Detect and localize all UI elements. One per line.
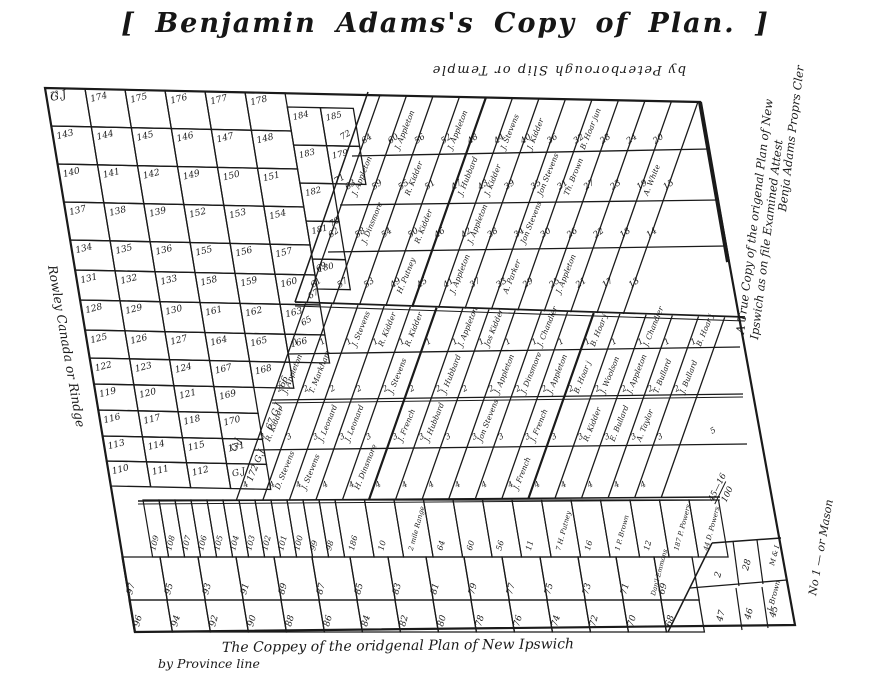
lot-number: 113 xyxy=(107,438,126,452)
lot-number: 2 xyxy=(713,570,724,579)
tier-mark: 4 xyxy=(585,479,595,490)
extra-label: 5 xyxy=(709,425,718,435)
proprietor-name: J. Appleton xyxy=(445,109,470,153)
lot-number: 91 xyxy=(239,582,252,596)
proprietor-name: J. Hubbard xyxy=(438,353,463,396)
proprietor-name: B. Hoar j xyxy=(694,312,716,349)
lot-number: 17 xyxy=(600,276,615,291)
slip-number: 16 xyxy=(583,539,594,551)
slip-number: 104 xyxy=(228,534,241,551)
tier-line xyxy=(328,246,726,252)
lot-number: 169 xyxy=(218,389,237,403)
section-line xyxy=(733,541,739,586)
lot-number: 168 xyxy=(254,363,273,377)
tier-mark: 1 xyxy=(503,336,512,346)
slip-number: 99 xyxy=(308,539,319,551)
slip-number: 105 xyxy=(212,534,225,551)
lot-number: 39 xyxy=(502,178,517,193)
lot-number: 36 xyxy=(545,132,560,147)
proprietor-name: J. Dinsmore xyxy=(359,200,385,246)
slip-number: 44 D. Powers xyxy=(702,505,722,552)
lot-number: 95 xyxy=(163,582,176,596)
lot-number: 30 xyxy=(539,226,554,241)
lot-number: 164 xyxy=(209,335,228,349)
lot-number: 129 xyxy=(124,303,143,317)
lot-number: 26 xyxy=(564,226,580,241)
lot-number: 165 xyxy=(249,335,268,349)
slip-number: 56 xyxy=(495,539,506,551)
lot-number: 178 xyxy=(249,94,268,108)
lot-number: 37 xyxy=(468,276,483,291)
proprietor-name: R. Kidder xyxy=(376,311,398,349)
plan-map: by Peterborough Slip or Temple Rowley Ca… xyxy=(0,0,891,698)
thick-boundary-line xyxy=(700,102,728,262)
slip-number: 10 xyxy=(377,539,388,551)
proprietor-name: A. Taylor xyxy=(634,408,656,444)
slip-number: 60 xyxy=(465,539,476,551)
slip-number: 109 xyxy=(148,534,161,551)
annotation-corner-mason: No 1 — or Mason xyxy=(806,498,836,597)
lot-number: 151 xyxy=(262,170,281,184)
lot-number: 137 xyxy=(68,204,87,218)
lot-number: 124 xyxy=(174,362,193,376)
lot-number: 94 xyxy=(170,614,183,628)
tier-mark: 4 xyxy=(558,479,568,490)
lot-number: 167 xyxy=(214,363,233,377)
tier-mark: 3 xyxy=(364,431,373,441)
proprietor-name: J. Woolson xyxy=(597,355,621,397)
lot-number: 148 xyxy=(256,132,275,146)
lot-number: 141 xyxy=(102,167,121,181)
lot-number: 153 xyxy=(228,207,247,221)
lot-number: 92 xyxy=(208,614,221,628)
lot-number: 51 xyxy=(423,178,438,192)
plan-lots-layer: G.J1741751761771781841851431441451461471… xyxy=(45,87,795,632)
lot-number: 135 xyxy=(115,243,134,257)
lot-number: 54 xyxy=(380,226,395,240)
proprietor-name: J. Appleton xyxy=(455,306,480,350)
lot-number: 147 xyxy=(216,131,235,145)
lot-number: 119 xyxy=(98,386,117,400)
lot-number: 184 xyxy=(292,109,310,123)
lot-number: 21 xyxy=(573,276,588,291)
lot-number: 120 xyxy=(138,387,157,401)
lot-number: 84 xyxy=(360,614,373,628)
tier-mark: 1 xyxy=(662,336,671,346)
lot-number: 116 xyxy=(103,412,122,426)
lot-number: 53 xyxy=(362,276,377,290)
lot-number: 46 xyxy=(743,607,756,622)
lot-number: 146 xyxy=(176,131,195,145)
lot-number: 23 xyxy=(608,178,623,193)
tier-mark: 3 xyxy=(444,431,453,441)
tier-mark: 4 xyxy=(479,479,489,490)
slip-number: 64 xyxy=(436,539,447,551)
lot-number: 83 xyxy=(391,582,404,596)
slip-number: 186 xyxy=(347,534,360,551)
slip-number: 108 xyxy=(164,534,177,551)
lot-number: 140 xyxy=(62,166,81,180)
lot-number: 14 xyxy=(645,226,660,240)
lot-number: 20 xyxy=(650,132,666,147)
lot-number: 121 xyxy=(178,388,197,402)
lot-number: 159 xyxy=(240,275,259,289)
proprietor-name: Jos Kidder xyxy=(481,307,505,349)
lot-number: 185 xyxy=(325,110,343,124)
lot-number: 142 xyxy=(142,168,161,182)
lot-number: 174 xyxy=(89,91,108,105)
slip-number: 11 xyxy=(524,539,535,551)
strip-line xyxy=(333,96,406,305)
proprietor-name: H. Putney xyxy=(395,256,418,296)
tier-mark: 3 xyxy=(497,431,506,441)
annotation-left-edge: Rowley Canada or Rindge xyxy=(45,263,88,428)
proprietor-name: R. Kidder xyxy=(412,208,434,246)
lot-number: 126 xyxy=(129,333,148,347)
tier-mark: 4 xyxy=(426,479,436,490)
slip-number: 106 xyxy=(196,534,209,551)
lot-number: 90 xyxy=(246,614,259,628)
tier-mark: 4 xyxy=(452,479,462,490)
lot-number: 75 xyxy=(543,582,556,596)
acreage-fraction: 45—16 100 xyxy=(706,471,740,509)
lot-number: 160 xyxy=(280,276,299,290)
lot-number: 177 xyxy=(209,93,228,107)
lot-number: 80 xyxy=(436,614,449,628)
slip-number: 1 P. Brown xyxy=(614,514,631,551)
lot-number: 150 xyxy=(222,169,241,183)
proprietor-name: J. Appleton xyxy=(279,353,304,397)
proprietor-name: J. Appleton xyxy=(491,353,516,397)
tier-mark: 1 xyxy=(609,336,618,346)
section-line xyxy=(757,540,763,584)
tier-mark: 3 xyxy=(656,431,665,441)
slip-number: 102 xyxy=(260,534,273,551)
proprietor-name: R. Kidder xyxy=(581,406,603,444)
lot-number: 13 xyxy=(627,276,642,290)
slip-number: 187 P. Powers xyxy=(673,503,693,552)
lot-number: 125 xyxy=(89,332,108,346)
proprietor-name: J. Stevens xyxy=(349,310,372,350)
lot-number: 22 xyxy=(591,226,606,241)
proprietor-name: J. French xyxy=(528,407,550,444)
lot-number: 46 xyxy=(432,226,448,241)
map-subcaption: by Province line xyxy=(158,656,260,671)
lot-number: 87 xyxy=(315,582,328,596)
slip-number: 103 xyxy=(244,534,257,551)
lot-number: 79 xyxy=(467,582,480,596)
lot-number: 85 xyxy=(353,582,366,596)
slip-number: 12 xyxy=(642,539,653,551)
scanned-page: [ Benjamin Adams's Copy of Plan. ] by Pe… xyxy=(0,0,891,698)
lot-number: 175 xyxy=(129,92,148,106)
tier-line xyxy=(254,444,747,450)
strip-line xyxy=(359,96,433,305)
lot-number: 71 xyxy=(619,582,632,596)
lot-number: 72 xyxy=(588,614,601,628)
tier-mark: 4 xyxy=(373,479,383,490)
slip-number: 7 H. Putney xyxy=(555,510,573,551)
tier-mark: 4 xyxy=(399,479,409,490)
lot-number: 183 xyxy=(298,147,316,161)
proprietor-name: J. Bullard xyxy=(677,359,699,397)
lot-number: 73 xyxy=(581,582,594,596)
proprietor-name: J. Leonard xyxy=(342,403,366,444)
lot-number: 115 xyxy=(187,440,206,454)
tier-mark: 4 xyxy=(638,479,648,490)
lot-number: 136 xyxy=(155,244,174,258)
lot-number: 48 xyxy=(465,132,481,147)
lot-number: 131 xyxy=(80,272,99,286)
tier-mark: 1 xyxy=(556,336,565,346)
lot-number: 118 xyxy=(183,414,202,428)
lot-number: 56 xyxy=(413,132,428,147)
lot-number: 86 xyxy=(322,614,335,628)
lot-number: 93 xyxy=(201,582,214,596)
lot-number: 134 xyxy=(75,242,94,256)
lot-number: 117 xyxy=(143,413,162,427)
slip-number: 100 xyxy=(292,534,305,551)
lot-number: 130 xyxy=(164,304,183,318)
lot-number: 132 xyxy=(120,273,139,287)
lot-number: 138 xyxy=(108,205,127,219)
proprietor-name: E. Bullard xyxy=(607,404,630,444)
tier-line xyxy=(288,347,740,354)
lot-number: 122 xyxy=(94,360,113,374)
lot-number: 154 xyxy=(268,208,287,222)
lot-number: 64 xyxy=(360,132,375,146)
annotation-signature: Benja Adams Proprs Cler xyxy=(775,63,807,213)
proprietor-name: J. Appleton xyxy=(392,109,417,153)
tier-mark: 2 xyxy=(407,383,417,394)
lot-number: 157 xyxy=(275,246,294,260)
tier-mark: 2 xyxy=(354,383,364,394)
lot-number: 81 xyxy=(429,582,442,596)
lot-number: 128 xyxy=(84,302,103,316)
slip-number: 107 xyxy=(180,534,193,552)
lot-number: 88 xyxy=(284,614,297,628)
lot-number: 145 xyxy=(136,130,155,144)
proprietor-name: J. Chandler xyxy=(534,305,559,350)
lot-number: 89 xyxy=(277,582,290,596)
proprietor-name: J. Stevens xyxy=(299,453,322,493)
lot-number: 24 xyxy=(624,132,639,147)
tier-line xyxy=(272,394,743,400)
edge-lot-number: 65 xyxy=(300,315,314,329)
tier-mark: 2 xyxy=(327,383,337,394)
map-caption: The Coppey of the oridgenal Plan of New … xyxy=(222,636,574,656)
lot-number: 149 xyxy=(182,169,201,183)
proprietor-name: R. Kidder xyxy=(402,311,424,349)
slip-number: 98 xyxy=(324,539,335,551)
lot-number: 78 xyxy=(474,614,487,628)
tier-mark: 1 xyxy=(424,336,433,346)
lot-number: 27 xyxy=(581,178,597,193)
lot-number: 144 xyxy=(96,129,115,143)
tier-mark: 4 xyxy=(320,479,330,490)
section-line xyxy=(712,538,781,543)
lot-number: 110 xyxy=(111,463,130,477)
tier-mark: 3 xyxy=(285,431,294,441)
proprietor-name: D. Stevens xyxy=(273,450,297,492)
lot-number: 155 xyxy=(195,245,214,259)
lot-number: 74 xyxy=(550,614,563,628)
lot-number: 96 xyxy=(132,614,145,628)
strip-line xyxy=(316,306,384,500)
slip-number: 101 xyxy=(276,534,289,551)
lot-number: 47 xyxy=(715,609,728,624)
lot-number: 152 xyxy=(188,207,207,221)
lot-number: 176 xyxy=(169,93,188,107)
lot-number: 156 xyxy=(235,245,254,259)
lot-number: 111 xyxy=(151,464,170,478)
proprietor-name: J. Hubbard xyxy=(422,401,447,444)
lot-number: 18 xyxy=(618,226,633,241)
lot-number: 97 xyxy=(125,582,138,596)
section-line xyxy=(736,588,742,630)
lot-number: 59 xyxy=(370,178,385,193)
lot-number: 29 xyxy=(520,276,536,291)
lot-number: 77 xyxy=(505,582,518,596)
lot-number: 161 xyxy=(204,305,223,319)
lot-number: 82 xyxy=(398,614,411,628)
tier-mark: 3 xyxy=(550,431,559,441)
lot-number: 28 xyxy=(597,132,613,147)
proprietor-name: T. Bullard xyxy=(651,357,673,395)
lot-number: M & I xyxy=(768,544,781,567)
lot-number: 133 xyxy=(160,274,179,288)
lot-number: 158 xyxy=(200,275,219,289)
lot-number: 45 xyxy=(414,276,429,291)
proprietor-name: J. Leonard xyxy=(316,403,340,444)
lot-number: 38 xyxy=(486,226,501,241)
lot-number: 182 xyxy=(304,185,322,199)
lot-number: 143 xyxy=(56,128,75,142)
proprietor-name: J. Stevens xyxy=(385,357,408,397)
proprietor-name: J. French xyxy=(511,455,533,492)
tier-mark: 4 xyxy=(532,479,542,490)
tier-mark: 2 xyxy=(460,383,470,394)
proprietor-name: R. Kidder xyxy=(403,160,425,198)
lot-number: 112 xyxy=(191,465,210,479)
lot-number: 28 xyxy=(741,558,754,573)
proprietor-name: J. Chandler xyxy=(640,305,665,350)
lot-number: 123 xyxy=(134,361,153,375)
tier-line xyxy=(272,397,743,403)
lot-number: 127 xyxy=(169,334,188,348)
lot-number: 114 xyxy=(147,439,166,453)
lot-number: 76 xyxy=(512,614,525,628)
lot-number: 162 xyxy=(244,305,263,319)
annotation-top-edge: by Peterborough Slip or Temple xyxy=(431,62,686,77)
slip-number: 2 mile Range xyxy=(407,505,427,552)
lot-number: 15 xyxy=(661,178,676,192)
lot-number: 139 xyxy=(148,206,167,220)
tier-mark: 4 xyxy=(611,479,621,490)
lot-number: 170 xyxy=(223,415,242,429)
proprietor-name: J. Appleton xyxy=(624,353,649,397)
